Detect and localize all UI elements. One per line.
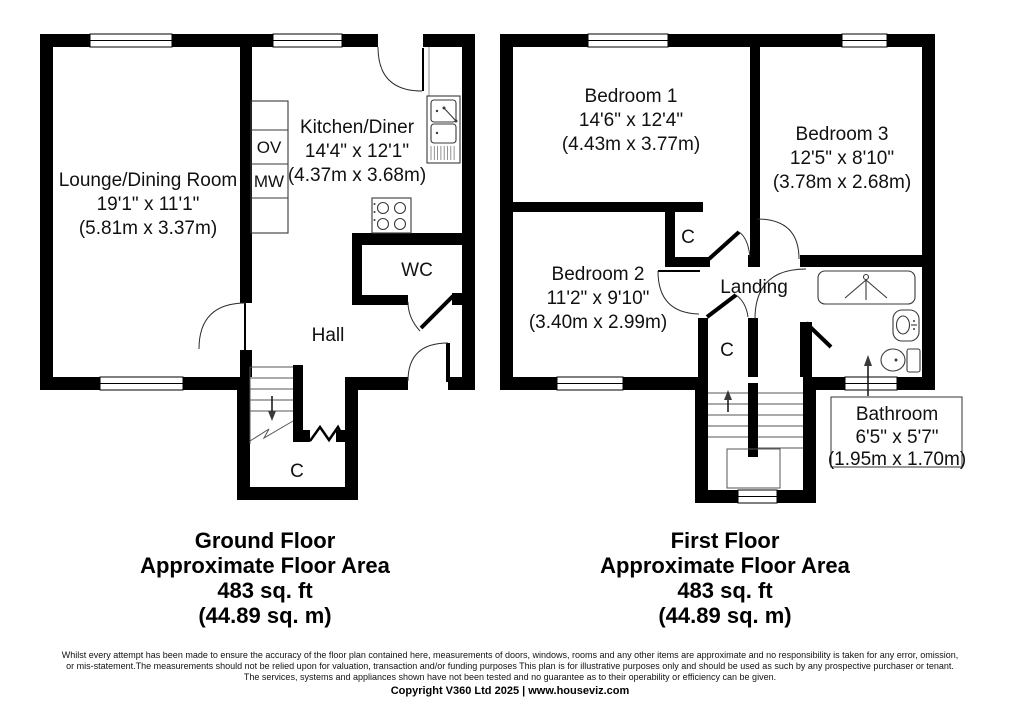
landing-name: Landing (720, 277, 788, 298)
bedroom3-door (757, 219, 799, 259)
bedroom2-dims-metric: (3.40m x 2.99m) (529, 312, 667, 333)
ground-floor-area-imperial: 483 sq. ft (20, 578, 510, 603)
bedroom3-name: Bedroom 3 (796, 124, 889, 145)
window (842, 34, 887, 47)
ground-floor-staircase (250, 367, 293, 444)
copyright-line: Copyright V360 Ltd 2025 | www.houseviz.c… (0, 686, 1020, 697)
bedroom3-dims-imperial: 12'5" x 8'10" (790, 148, 894, 169)
disclaimer-line-2: or mis-statement.The measurements should… (0, 661, 1020, 672)
bedroom2-name: Bedroom 2 (552, 264, 645, 285)
footer: Whilst every attempt has been made to en… (0, 650, 1020, 697)
wc-door (408, 296, 453, 331)
first-floor-subtitle: Approximate Floor Area (480, 553, 970, 578)
first-floor-area-imperial: 483 sq. ft (480, 578, 970, 603)
lounge-door (199, 303, 246, 350)
oven-microwave-unit (251, 101, 288, 233)
lounge-dims-imperial: 19'1" x 11'1" (97, 194, 200, 215)
callout-arrow-head (864, 355, 872, 366)
microwave-label: MW (254, 172, 284, 191)
disclaimer-line-3: The services, systems and appliances sho… (0, 672, 1020, 683)
bathroom-name: Bathroom (856, 404, 938, 425)
bathtub-icon (818, 271, 915, 304)
toilet-icon (881, 349, 920, 372)
ground-floor-caption: Ground Floor Approximate Floor Area 483 … (20, 528, 510, 628)
bedroom1-dims-imperial: 14'6" x 12'4" (579, 110, 683, 131)
bathroom-dims-imperial: 6'5" x 5'7" (855, 427, 938, 448)
lounge-name: Lounge/Dining Room (59, 170, 238, 191)
wash-basin-icon (893, 310, 919, 341)
window (100, 377, 183, 390)
disclaimer-line-1: Whilst every attempt has been made to en… (0, 650, 1020, 661)
back-door (378, 47, 423, 91)
window (588, 34, 668, 47)
bedroom1-dims-metric: (4.43m x 3.77m) (562, 134, 700, 155)
window (845, 377, 897, 390)
lower-cupboard-label: C (720, 340, 734, 361)
first-floor-labels: Bedroom 1 14'6" x 12'4" (4.43m x 3.77m) … (529, 86, 911, 361)
lower-cupboard-door (707, 295, 748, 317)
upper-cupboard-door (709, 232, 750, 259)
bedroom2-dims-imperial: 11'2" x 9'10" (547, 288, 650, 309)
bedroom1-name: Bedroom 1 (585, 86, 678, 107)
ground-floor-plan: Lounge/Dining Room 19'1" x 11'1" (5.81m … (40, 34, 475, 500)
hall-name: Hall (312, 325, 345, 346)
window (273, 34, 342, 47)
oven-label: OV (257, 138, 282, 157)
lounge-dims-metric: (5.81m x 3.37m) (79, 218, 217, 239)
kitchen-dims-imperial: 14'4" x 12'1" (305, 141, 409, 162)
upper-cupboard-label: C (681, 227, 695, 248)
hob-icon (372, 198, 411, 233)
kitchen-name: Kitchen/Diner (300, 117, 415, 138)
draining-board (431, 146, 454, 160)
first-floor-caption: First Floor Approximate Floor Area 483 s… (480, 528, 970, 628)
first-floor-title: First Floor (480, 528, 970, 553)
ground-floor-title: Ground Floor (20, 528, 510, 553)
floor-plans-svg: Lounge/Dining Room 19'1" x 11'1" (5.81m … (0, 0, 1020, 510)
bedroom3-dims-metric: (3.78m x 2.68m) (773, 172, 911, 193)
ground-floor-area-metric: (44.89 sq. m) (20, 603, 510, 628)
front-door (408, 343, 448, 382)
bedroom2-door (658, 271, 700, 314)
bathroom-callout: Bathroom 6'5" x 5'7" (1.95m x 1.70m) (828, 355, 966, 470)
window (738, 490, 777, 503)
ground-cupboard-label: C (290, 461, 304, 482)
window (557, 377, 623, 390)
floorplan-page: Lounge/Dining Room 19'1" x 11'1" (5.81m … (0, 0, 1020, 720)
bathroom-dims-metric: (1.95m x 1.70m) (828, 449, 966, 470)
ground-floor-subtitle: Approximate Floor Area (20, 553, 510, 578)
wc-name: WC (401, 260, 433, 281)
kitchen-dims-metric: (4.37m x 3.68m) (288, 165, 426, 186)
window (90, 34, 172, 47)
first-floor-plan: Bathroom 6'5" x 5'7" (1.95m x 1.70m) Bed… (500, 34, 966, 503)
first-floor-area-metric: (44.89 sq. m) (480, 603, 970, 628)
kitchen-sink-icon (427, 47, 460, 163)
